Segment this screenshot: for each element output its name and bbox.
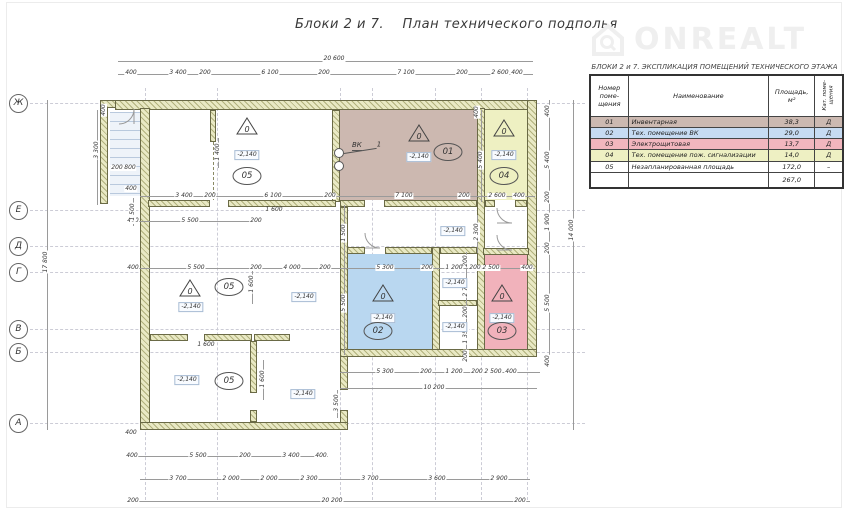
dimension-label: 17 800	[43, 251, 49, 274]
total-empty-cell	[815, 172, 843, 188]
room-number-05: 05	[215, 278, 244, 296]
dimension-line	[140, 196, 535, 197]
dimension-label: 5 300	[375, 265, 394, 271]
dimension-label: 2 000	[221, 476, 240, 482]
dimension-label: 200	[203, 193, 216, 199]
dimension-label: 200	[238, 453, 251, 459]
dimension-label: 1 600	[249, 274, 255, 293]
room-number-05: 05	[215, 372, 244, 390]
elevation-triangle-icon: 0	[236, 117, 258, 139]
room-number-cell: 02	[590, 128, 628, 139]
dimension-label: 200	[317, 70, 330, 76]
door-arc	[360, 232, 381, 249]
axis-bubble-А: А	[9, 414, 28, 433]
dimension-label: 3 700	[168, 476, 187, 482]
dimension-label: 5 400	[545, 150, 551, 169]
dimension-label: 200	[323, 193, 336, 199]
dimension-label: 3 300	[94, 140, 100, 159]
dimension-label: 2 300	[474, 222, 480, 241]
dimension-line	[549, 100, 550, 365]
axis-bubble-Ж: Ж	[9, 94, 28, 113]
room-number-cell: 03	[590, 139, 628, 150]
dimension-label: 200	[318, 265, 331, 271]
watermark-brand: ONREALT	[634, 25, 807, 55]
dimension-label: 200	[545, 190, 551, 203]
dimension-label: 400	[124, 70, 137, 76]
room-number-04: 04	[490, 167, 519, 185]
wall-segment	[250, 410, 257, 422]
dimension-label: 4 000	[282, 265, 301, 271]
dimension-label: 10 200	[423, 385, 446, 391]
dimension-label: 200	[198, 70, 211, 76]
dimension-label: 200	[470, 369, 483, 375]
dimension-label: 5 400	[478, 150, 484, 169]
room-category-cell: –	[815, 161, 843, 172]
total-empty-cell	[590, 172, 628, 188]
watermark: ONREALT	[588, 16, 838, 64]
wall-segment	[254, 334, 290, 341]
dimension-label: 5 500	[188, 453, 207, 459]
explication-row-02: 02Тех. помещение ВК29,0Д	[590, 128, 843, 139]
room-number-cell: 05	[590, 161, 628, 172]
room-number-05: 05	[233, 167, 262, 185]
dimension-label: 2 600	[487, 193, 506, 199]
dimension-label: 400	[512, 193, 525, 199]
svg-text:0: 0	[244, 125, 249, 134]
dimension-label: 200	[110, 165, 123, 171]
dimension-label: 5 500	[545, 293, 551, 312]
svg-text:0: 0	[499, 292, 504, 301]
door-arc	[492, 207, 513, 224]
dimension-label: 200	[420, 265, 433, 271]
elevation-triangle-icon: 0	[493, 119, 515, 141]
room-area-cell: 13,7	[769, 139, 815, 150]
dimension-label: 14 000	[569, 219, 575, 242]
dimension-label: 3 700	[360, 476, 379, 482]
explication-row-03: 03Электрощитовая13,7Д	[590, 139, 843, 150]
dimension-label: 400	[520, 265, 533, 271]
elevation-mark: -2,140	[178, 302, 203, 312]
vk-label: ВК	[352, 142, 362, 151]
wall-segment	[204, 334, 252, 341]
vk-fixture-icon	[334, 161, 344, 171]
axis-bubble-Б: Б	[9, 343, 28, 362]
dimension-label: 20 200	[321, 498, 344, 504]
dimension-label: 400	[545, 104, 551, 117]
dimension-label: 3 500	[334, 393, 340, 412]
dimension-label: 1 600	[260, 369, 266, 388]
axis-bubble-Д: Д	[9, 237, 28, 256]
elevation-mark: -2,140	[290, 389, 315, 399]
dimension-label: 800	[123, 165, 136, 171]
room-category-cell: Д	[815, 128, 843, 139]
dimension-label: 1 500	[341, 223, 347, 242]
room-category-cell: Д	[815, 139, 843, 150]
wall-segment	[440, 247, 477, 254]
dimension-line	[573, 100, 574, 430]
dimension-label: 400	[124, 186, 137, 192]
wall-segment	[115, 100, 535, 110]
elevation-triangle-icon: 0	[372, 284, 394, 306]
dimension-label: 2 300	[299, 476, 318, 482]
wall-segment	[140, 422, 348, 430]
dimension-label: 200	[463, 349, 469, 362]
total-area-value: 267,0	[769, 172, 815, 188]
dimension-label: 200	[419, 369, 432, 375]
svg-text:0: 0	[187, 287, 192, 296]
room-number-cell: 04	[590, 150, 628, 161]
room-area-cell: 29,0	[769, 128, 815, 139]
wall-segment	[515, 200, 527, 207]
dimension-label: 200	[126, 498, 139, 504]
room-name-cell: Электрощитовая	[628, 139, 768, 150]
dimension-label: 200	[468, 265, 481, 271]
header-room-category: Кат. поме- щения	[815, 75, 843, 117]
dimension-label: 2 500	[483, 369, 502, 375]
vk-fixture-icon	[334, 148, 344, 158]
explication-title: БЛОКИ 2 и 7. ЭКСПЛИКАЦИЯ ПОМЕЩЕНИЙ ТЕХНИ…	[589, 64, 840, 71]
room-area-cell: 172,0	[769, 161, 815, 172]
elevation-mark: -2,140	[406, 152, 431, 162]
room-area-cell: 38,3	[769, 117, 815, 128]
axis-bubble-В: В	[9, 320, 28, 339]
dimension-label: 5 500	[186, 265, 205, 271]
dimension-label: 5 500	[341, 293, 347, 312]
dimension-label: 400	[510, 70, 523, 76]
dimension-label: 200	[463, 305, 469, 318]
wall-segment	[148, 200, 210, 207]
total-empty-cell	[628, 172, 768, 188]
explication-table: Номер поме- щения Наименование Площадь, …	[589, 74, 844, 189]
dimension-label: 20 600	[323, 56, 346, 62]
elevation-mark: -2,140	[174, 375, 199, 385]
svg-text:0: 0	[501, 127, 506, 136]
dimension-label: 1 200	[444, 265, 463, 271]
header-room-name: Наименование	[628, 75, 768, 117]
explication-row-05: 05Незапланированная площадь172,0–	[590, 161, 843, 172]
header-room-number: Номер поме- щения	[590, 75, 628, 117]
wall-segment	[140, 108, 150, 430]
explication-row-01: 01Инвентарная38,3Д	[590, 117, 843, 128]
dimension-label: 200	[513, 498, 526, 504]
dimension-label: 1 600	[264, 207, 283, 213]
floor-plan: ВК 1 ЖЕДГВБА20 6004003 4002006 1002007 1…	[0, 0, 600, 510]
elevation-mark: -2,140	[291, 292, 316, 302]
dimension-label: 400	[504, 369, 517, 375]
elevation-mark: -2,140	[442, 322, 467, 332]
dimension-label: 7 100	[396, 70, 415, 76]
door-arc	[492, 234, 513, 251]
elevation-mark: -2,140	[234, 150, 259, 160]
room-category-cell: Д	[815, 117, 843, 128]
svg-text:0: 0	[416, 132, 421, 141]
wall-segment	[150, 334, 188, 341]
door-arc	[118, 108, 135, 129]
explication-row-04: 04Тех. помещение пож. сигнализации14,0Д	[590, 150, 843, 161]
room-area-cell: 14,0	[769, 150, 815, 161]
dimension-label: 5 500	[180, 218, 199, 224]
elevation-triangle-icon: 0	[491, 284, 513, 306]
dimension-label: 400	[101, 103, 107, 116]
dimension-label: 1 200	[444, 369, 463, 375]
dimension-label: 6 100	[260, 70, 279, 76]
dimension-label: 200	[249, 218, 262, 224]
room-number-01: 01	[434, 143, 463, 161]
dimension-label: 3 400	[174, 193, 193, 199]
header-room-area: Площадь, м²	[769, 75, 815, 117]
dimension-label: 400	[314, 453, 327, 459]
elevation-mark: -2,140	[442, 278, 467, 288]
room-name-cell: Тех. помещение ВК	[628, 128, 768, 139]
wall-segment	[438, 300, 477, 306]
dimension-label: 200	[545, 241, 551, 254]
room-name-cell: Незапланированная площадь	[628, 161, 768, 172]
dimension-label: 6 100	[263, 193, 282, 199]
drawing-page: Блоки 2 и 7. План технического подполья …	[0, 0, 844, 510]
dimension-label: 7 100	[394, 193, 413, 199]
wall-segment	[485, 200, 495, 207]
wall-segment	[527, 100, 537, 357]
dimension-label: 200	[457, 193, 470, 199]
elevation-mark: -2,140	[491, 150, 516, 160]
room-name-cell: Инвентарная	[628, 117, 768, 128]
dimension-label: 1 600	[196, 342, 215, 348]
axis-bubble-Г: Г	[9, 263, 28, 282]
dimension-label: 400	[126, 265, 139, 271]
dimension-label: 200	[455, 70, 468, 76]
dimension-label: 3 400	[281, 453, 300, 459]
dimension-label: 400	[125, 453, 138, 459]
dimension-label: 400	[545, 354, 551, 367]
dimension-label: 5 300	[375, 369, 394, 375]
dimension-label: 200	[463, 254, 469, 267]
dimension-label: 400	[124, 430, 137, 436]
dimension-label: 2 000	[259, 476, 278, 482]
svg-text:0: 0	[380, 292, 385, 301]
dimension-label: 3 600	[427, 476, 446, 482]
axis-bubble-Е: Е	[9, 201, 28, 220]
room-number-cell: 01	[590, 117, 628, 128]
room-number-02: 02	[364, 322, 393, 340]
room-category-cell: Д	[815, 150, 843, 161]
dimension-label: 2 900	[489, 476, 508, 482]
dimension-label: 2 500	[481, 265, 500, 271]
room-number-03: 03	[488, 322, 517, 340]
wall-segment	[385, 247, 432, 254]
dimension-label: 200	[249, 265, 262, 271]
vk-ref-number: 1	[376, 142, 382, 149]
dimension-label: 1 900	[545, 212, 551, 231]
dimension-label: 3 400	[168, 70, 187, 76]
dimension-label: 1 400	[215, 142, 221, 161]
dimension-label: 400	[474, 105, 480, 118]
wall-segment	[340, 349, 537, 357]
dimension-label: 1 500	[130, 202, 136, 221]
dimension-line	[140, 479, 530, 480]
elevation-mark: -2,140	[440, 226, 465, 236]
wall-segment	[384, 200, 477, 207]
room-name-cell: Тех. помещение пож. сигнализации	[628, 150, 768, 161]
elevation-triangle-icon: 0	[179, 279, 201, 301]
wall-segment	[250, 341, 257, 393]
elevation-triangle-icon: 0	[408, 124, 430, 146]
wall-segment	[210, 110, 216, 142]
dimension-label: 2 600	[490, 70, 509, 76]
